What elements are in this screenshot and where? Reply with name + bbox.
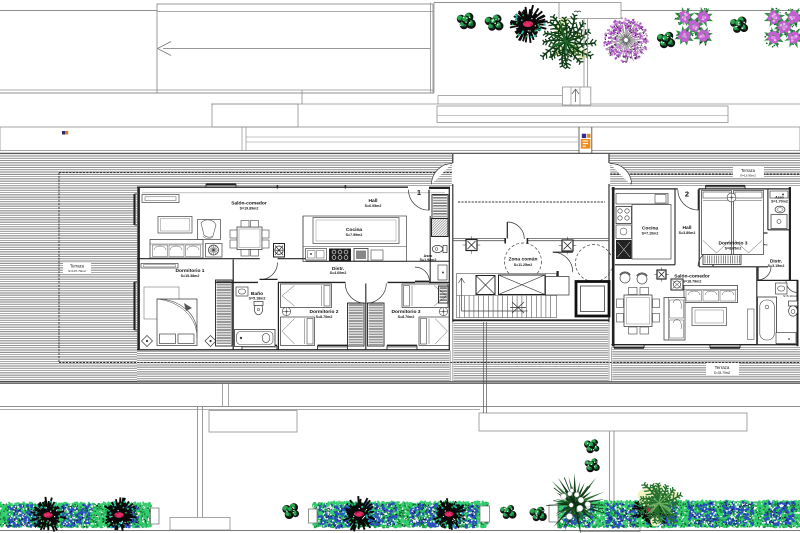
svg-text:S=7.99m2: S=7.99m2 — [346, 233, 363, 237]
svg-text:S=6.05m2: S=6.05m2 — [365, 204, 382, 208]
svg-text:S=3.80m2: S=3.80m2 — [679, 231, 696, 235]
svg-text:1: 1 — [417, 188, 421, 197]
svg-text:S=18.79m2: S=18.79m2 — [683, 280, 702, 284]
svg-text:Terraza: Terraza — [741, 168, 756, 173]
svg-text:S=8.65m2: S=8.65m2 — [725, 247, 742, 251]
svg-text:S=13.95m2: S=13.95m2 — [740, 174, 756, 178]
svg-text:Zona común: Zona común — [508, 257, 537, 263]
svg-text:S=8.70m2: S=8.70m2 — [398, 315, 415, 319]
svg-text:S=8.70m2: S=8.70m2 — [316, 315, 333, 319]
svg-text:S=33.70m2: S=33.70m2 — [714, 371, 731, 375]
svg-text:Terraza: Terraza — [70, 264, 85, 269]
svg-text:S=107.70m2: S=107.70m2 — [68, 269, 86, 273]
svg-text:Terraza: Terraza — [715, 365, 730, 370]
svg-text:S=11.25m2: S=11.25m2 — [514, 263, 532, 267]
svg-text:S=4.60m2: S=4.60m2 — [330, 271, 347, 275]
svg-text:S=5.10m2: S=5.10m2 — [783, 294, 797, 298]
svg-text:S=7.10m2: S=7.10m2 — [642, 232, 659, 236]
svg-text:S=19.89m2: S=19.89m2 — [240, 207, 259, 211]
svg-text:S=1.70m2: S=1.70m2 — [771, 200, 788, 204]
svg-text:S=3.15m2: S=3.15m2 — [768, 264, 785, 268]
svg-text:2: 2 — [685, 190, 689, 199]
svg-text:S=5.18m2: S=5.18m2 — [249, 297, 266, 301]
svg-text:S=1.98m2: S=1.98m2 — [420, 258, 437, 262]
svg-text:S=15.38m2: S=15.38m2 — [181, 274, 200, 278]
